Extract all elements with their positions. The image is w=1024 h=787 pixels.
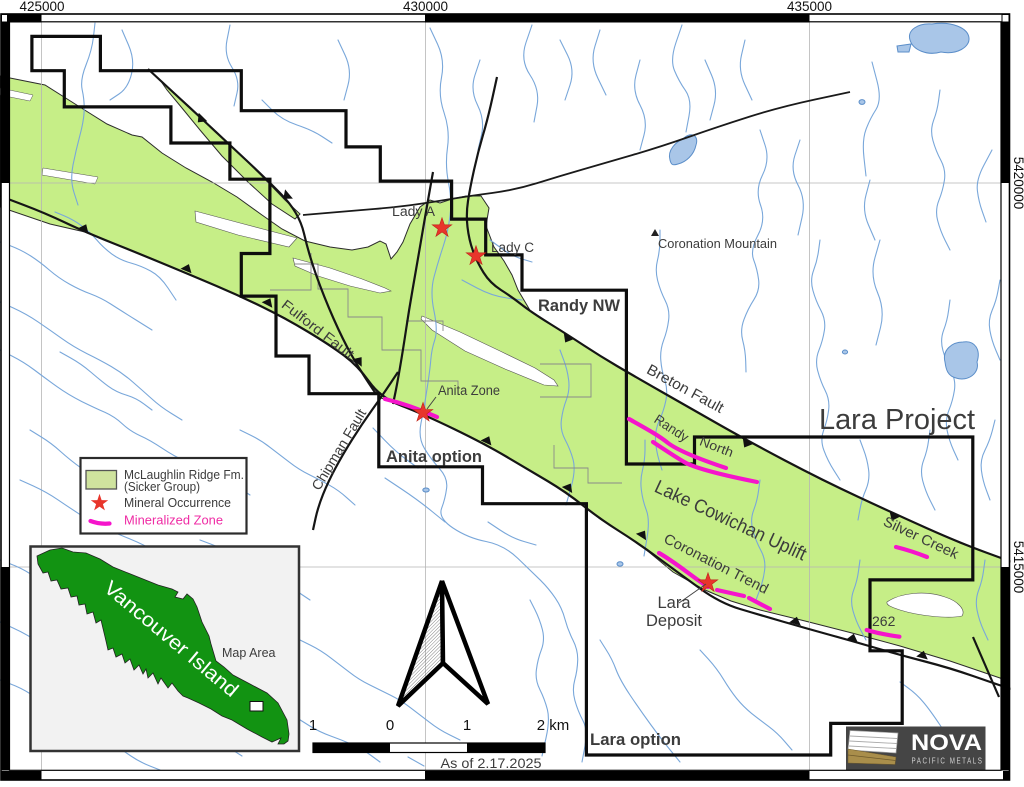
svg-text:1: 1 bbox=[309, 717, 317, 734]
svg-text:5420000: 5420000 bbox=[1011, 157, 1024, 210]
svg-text:Coronation Mountain: Coronation Mountain bbox=[658, 237, 777, 251]
svg-text:Map Area: Map Area bbox=[222, 646, 276, 660]
svg-text:5415000: 5415000 bbox=[1011, 541, 1024, 594]
svg-text:Lara option: Lara option bbox=[590, 730, 681, 749]
svg-text:Anita option: Anita option bbox=[386, 447, 482, 466]
svg-text:NOVA: NOVA bbox=[911, 730, 982, 755]
svg-text:PACIFIC METALS: PACIFIC METALS bbox=[912, 757, 984, 766]
svg-text:0: 0 bbox=[386, 717, 394, 734]
svg-text:1: 1 bbox=[463, 717, 471, 734]
svg-text:Lady C: Lady C bbox=[491, 240, 534, 255]
svg-text:Lady A: Lady A bbox=[392, 204, 435, 219]
svg-text:2 km: 2 km bbox=[537, 717, 570, 734]
svg-text:Anita Zone: Anita Zone bbox=[438, 383, 500, 398]
svg-text:Mineralized Zone: Mineralized Zone bbox=[124, 513, 223, 528]
svg-text:Lara: Lara bbox=[657, 594, 691, 612]
svg-text:Mineral Occurrence: Mineral Occurrence bbox=[124, 495, 231, 510]
svg-text:435000: 435000 bbox=[787, 0, 832, 14]
svg-text:As of 2.17.2025: As of 2.17.2025 bbox=[441, 756, 542, 771]
svg-text:262: 262 bbox=[872, 613, 896, 629]
svg-text:Randy NW: Randy NW bbox=[538, 296, 621, 315]
svg-text:430000: 430000 bbox=[403, 0, 448, 14]
svg-text:(Sicker Group): (Sicker Group) bbox=[124, 479, 200, 494]
svg-text:425000: 425000 bbox=[19, 0, 64, 14]
svg-text:Deposit: Deposit bbox=[646, 612, 702, 630]
svg-text:Lara Project: Lara Project bbox=[819, 404, 975, 436]
